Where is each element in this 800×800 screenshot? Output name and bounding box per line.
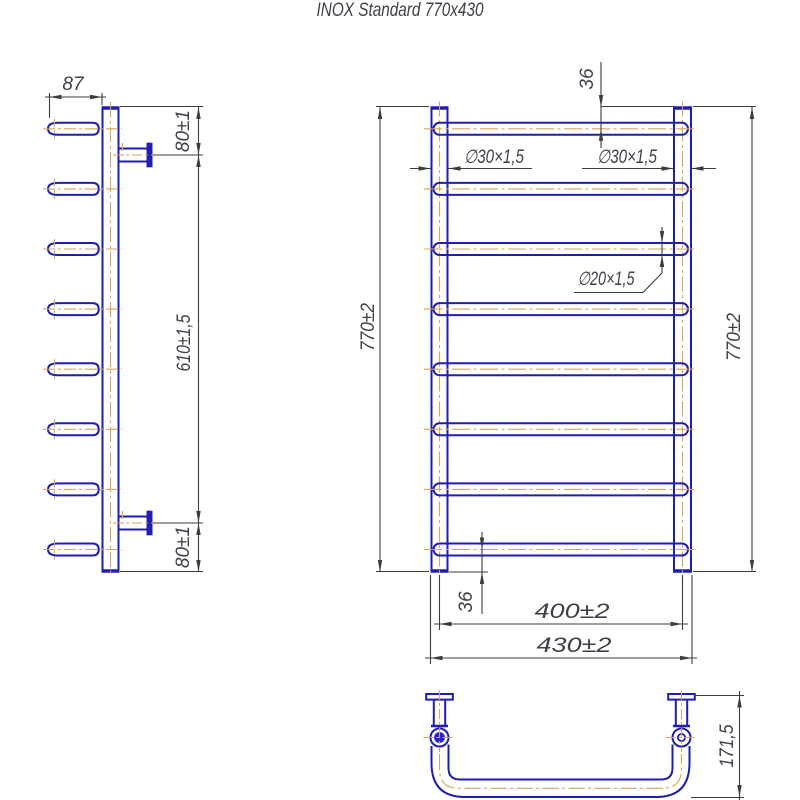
svg-text:36: 36 [577,68,598,90]
svg-text:80±1: 80±1 [173,526,194,568]
svg-text:770±2: 770±2 [358,303,379,351]
svg-text:610±1,5: 610±1,5 [174,314,195,371]
svg-text:80±1: 80±1 [173,110,194,152]
svg-text:36: 36 [456,591,477,613]
svg-text:770±2: 770±2 [724,313,745,361]
svg-text:∅30×1,5: ∅30×1,5 [464,147,524,168]
svg-text:400±2: 400±2 [535,600,610,623]
svg-text:INOX Standard 770x430: INOX Standard 770x430 [317,0,484,21]
svg-text:430±2: 430±2 [537,634,612,657]
svg-text:87: 87 [62,74,85,95]
svg-text:∅20×1,5: ∅20×1,5 [578,269,635,290]
svg-text:∅30×1,5: ∅30×1,5 [597,147,657,168]
svg-text:171,5: 171,5 [717,724,738,767]
